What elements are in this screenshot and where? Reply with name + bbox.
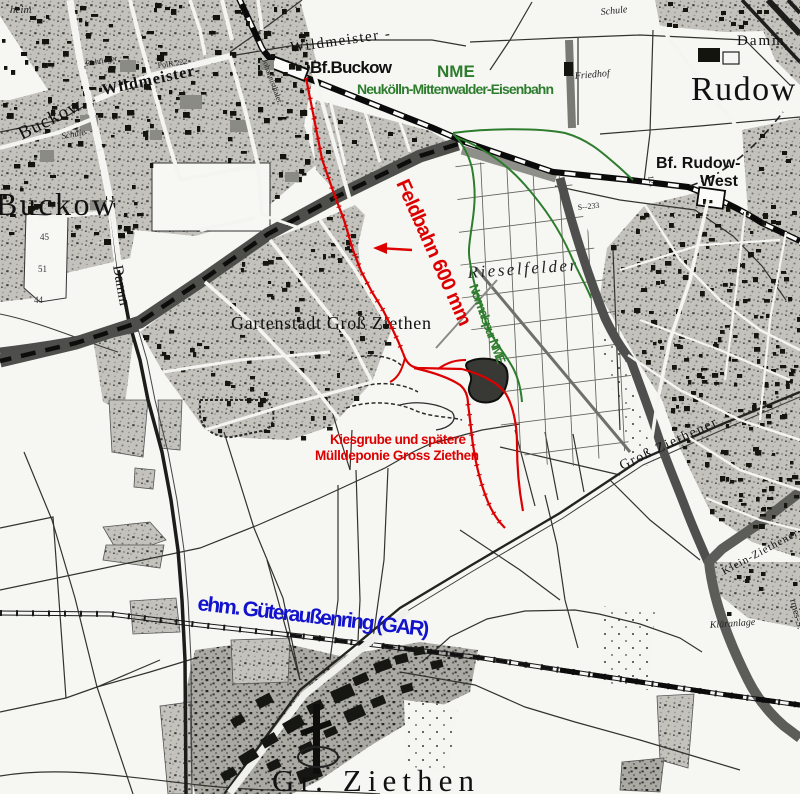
svg-text:West: West [700,173,739,190]
svg-text:Kiesgrube und spätere: Kiesgrube und spätere [330,432,466,447]
svg-text:NME: NME [437,62,475,81]
svg-text:Gartenstadt Groß Ziethen: Gartenstadt Groß Ziethen [231,313,431,333]
svg-text:Bf.Buckow: Bf.Buckow [310,58,393,77]
svg-text:Rudow: Rudow [691,71,797,108]
svg-text:Gr. Ziethen: Gr. Ziethen [272,763,475,794]
svg-text:heim: heim [10,4,31,16]
svg-text:Neukölln-Mittenwalder-Eisenbah: Neukölln-Mittenwalder-Eisenbahn [357,81,554,97]
svg-text:44: 44 [34,295,44,305]
svg-text:Damm: Damm [737,33,786,49]
svg-text:Mülldeponie Gross Ziethen: Mülldeponie Gross Ziethen [315,448,479,463]
svg-text:Bf. Rudow-: Bf. Rudow- [656,155,740,172]
svg-text:Buckow: Buckow [0,186,118,222]
svg-text:51: 51 [38,264,47,274]
svg-text:45: 45 [40,232,50,242]
